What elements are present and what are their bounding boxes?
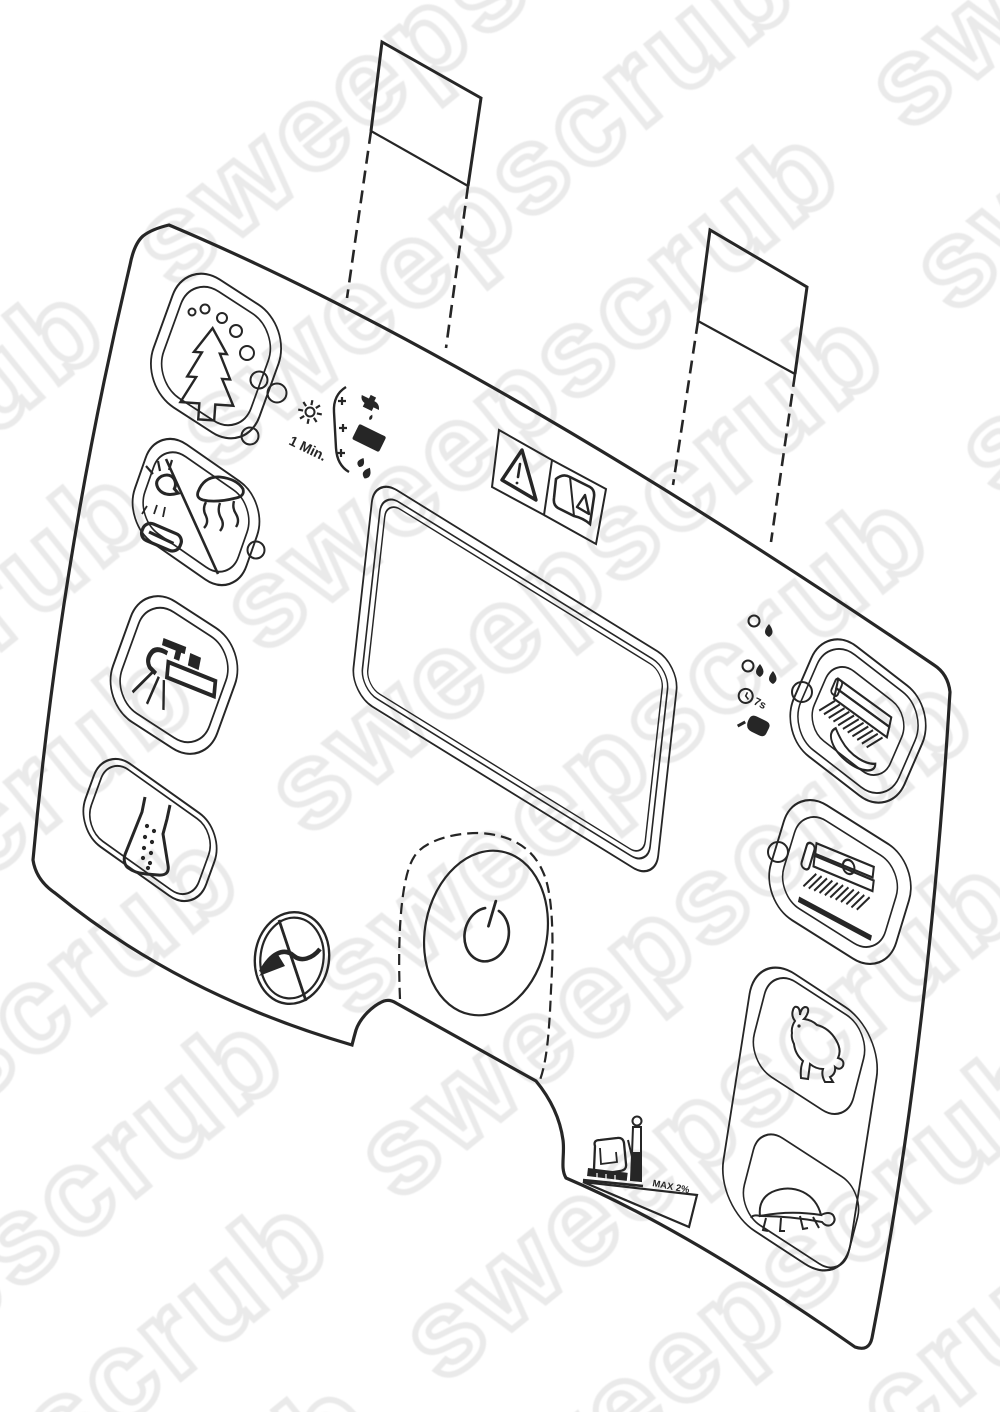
svg-text:1 Min.: 1 Min. <box>287 432 330 464</box>
svg-text:7s: 7s <box>752 696 768 712</box>
svg-text:MAX 2%: MAX 2% <box>651 1178 690 1196</box>
